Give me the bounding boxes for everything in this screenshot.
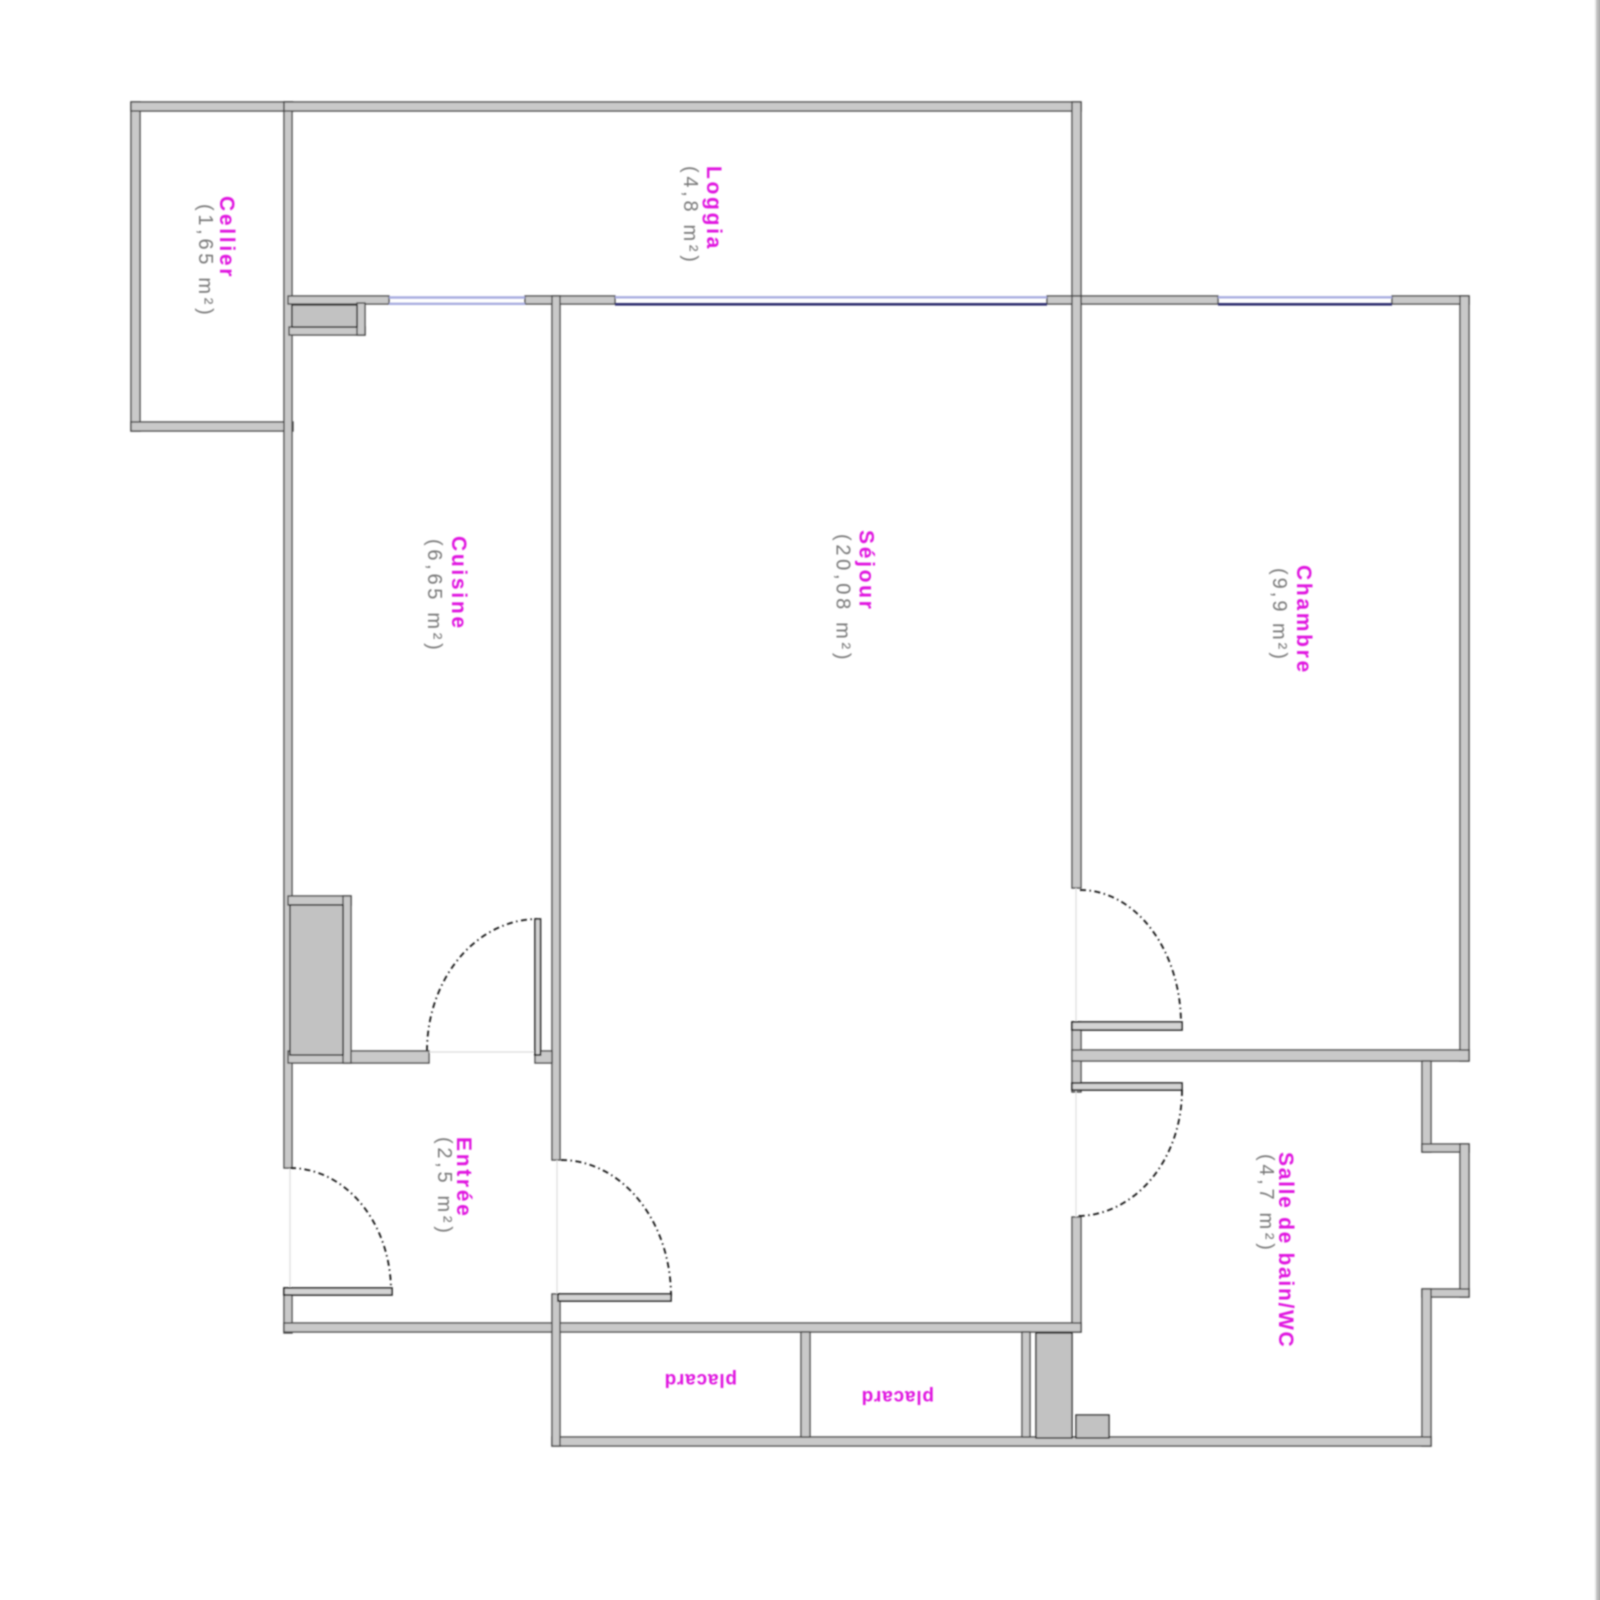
svg-text:placard: placard <box>664 1369 737 1390</box>
svg-text:Séjour: Séjour <box>855 530 878 612</box>
svg-text:(4,8 m²): (4,8 m²) <box>679 166 701 266</box>
svg-text:Loggia: Loggia <box>702 166 725 251</box>
svg-text:placard: placard <box>861 1386 934 1407</box>
svg-text:(2,5 m²): (2,5 m²) <box>433 1137 455 1237</box>
svg-text:Chambre: Chambre <box>1292 565 1315 675</box>
svg-text:(4,7 m²): (4,7 m²) <box>1255 1154 1277 1254</box>
svg-text:Cuisine: Cuisine <box>447 536 470 631</box>
svg-text:(6,65 m²): (6,65 m²) <box>423 539 445 653</box>
svg-text:(1,65 m²): (1,65 m²) <box>194 204 216 318</box>
svg-text:(9,9 m²): (9,9 m²) <box>1268 568 1290 662</box>
svg-text:Cellier: Cellier <box>215 196 238 279</box>
svg-text:(20,08 m²): (20,08 m²) <box>832 534 854 663</box>
